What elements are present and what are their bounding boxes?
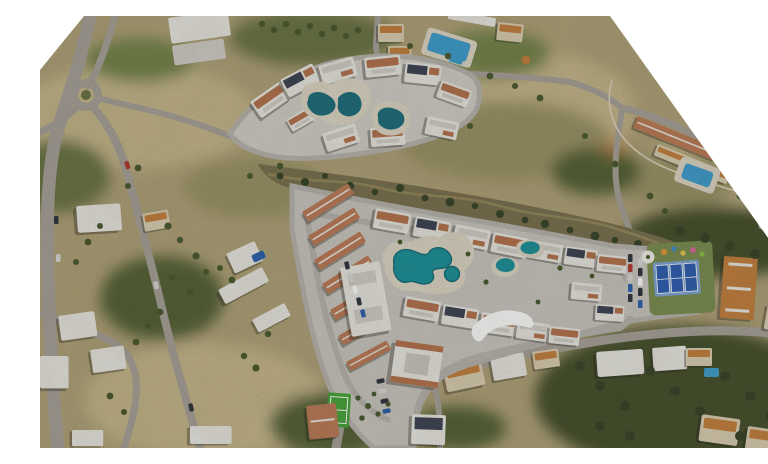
aerial-masterplan-screenshot [40,16,768,448]
